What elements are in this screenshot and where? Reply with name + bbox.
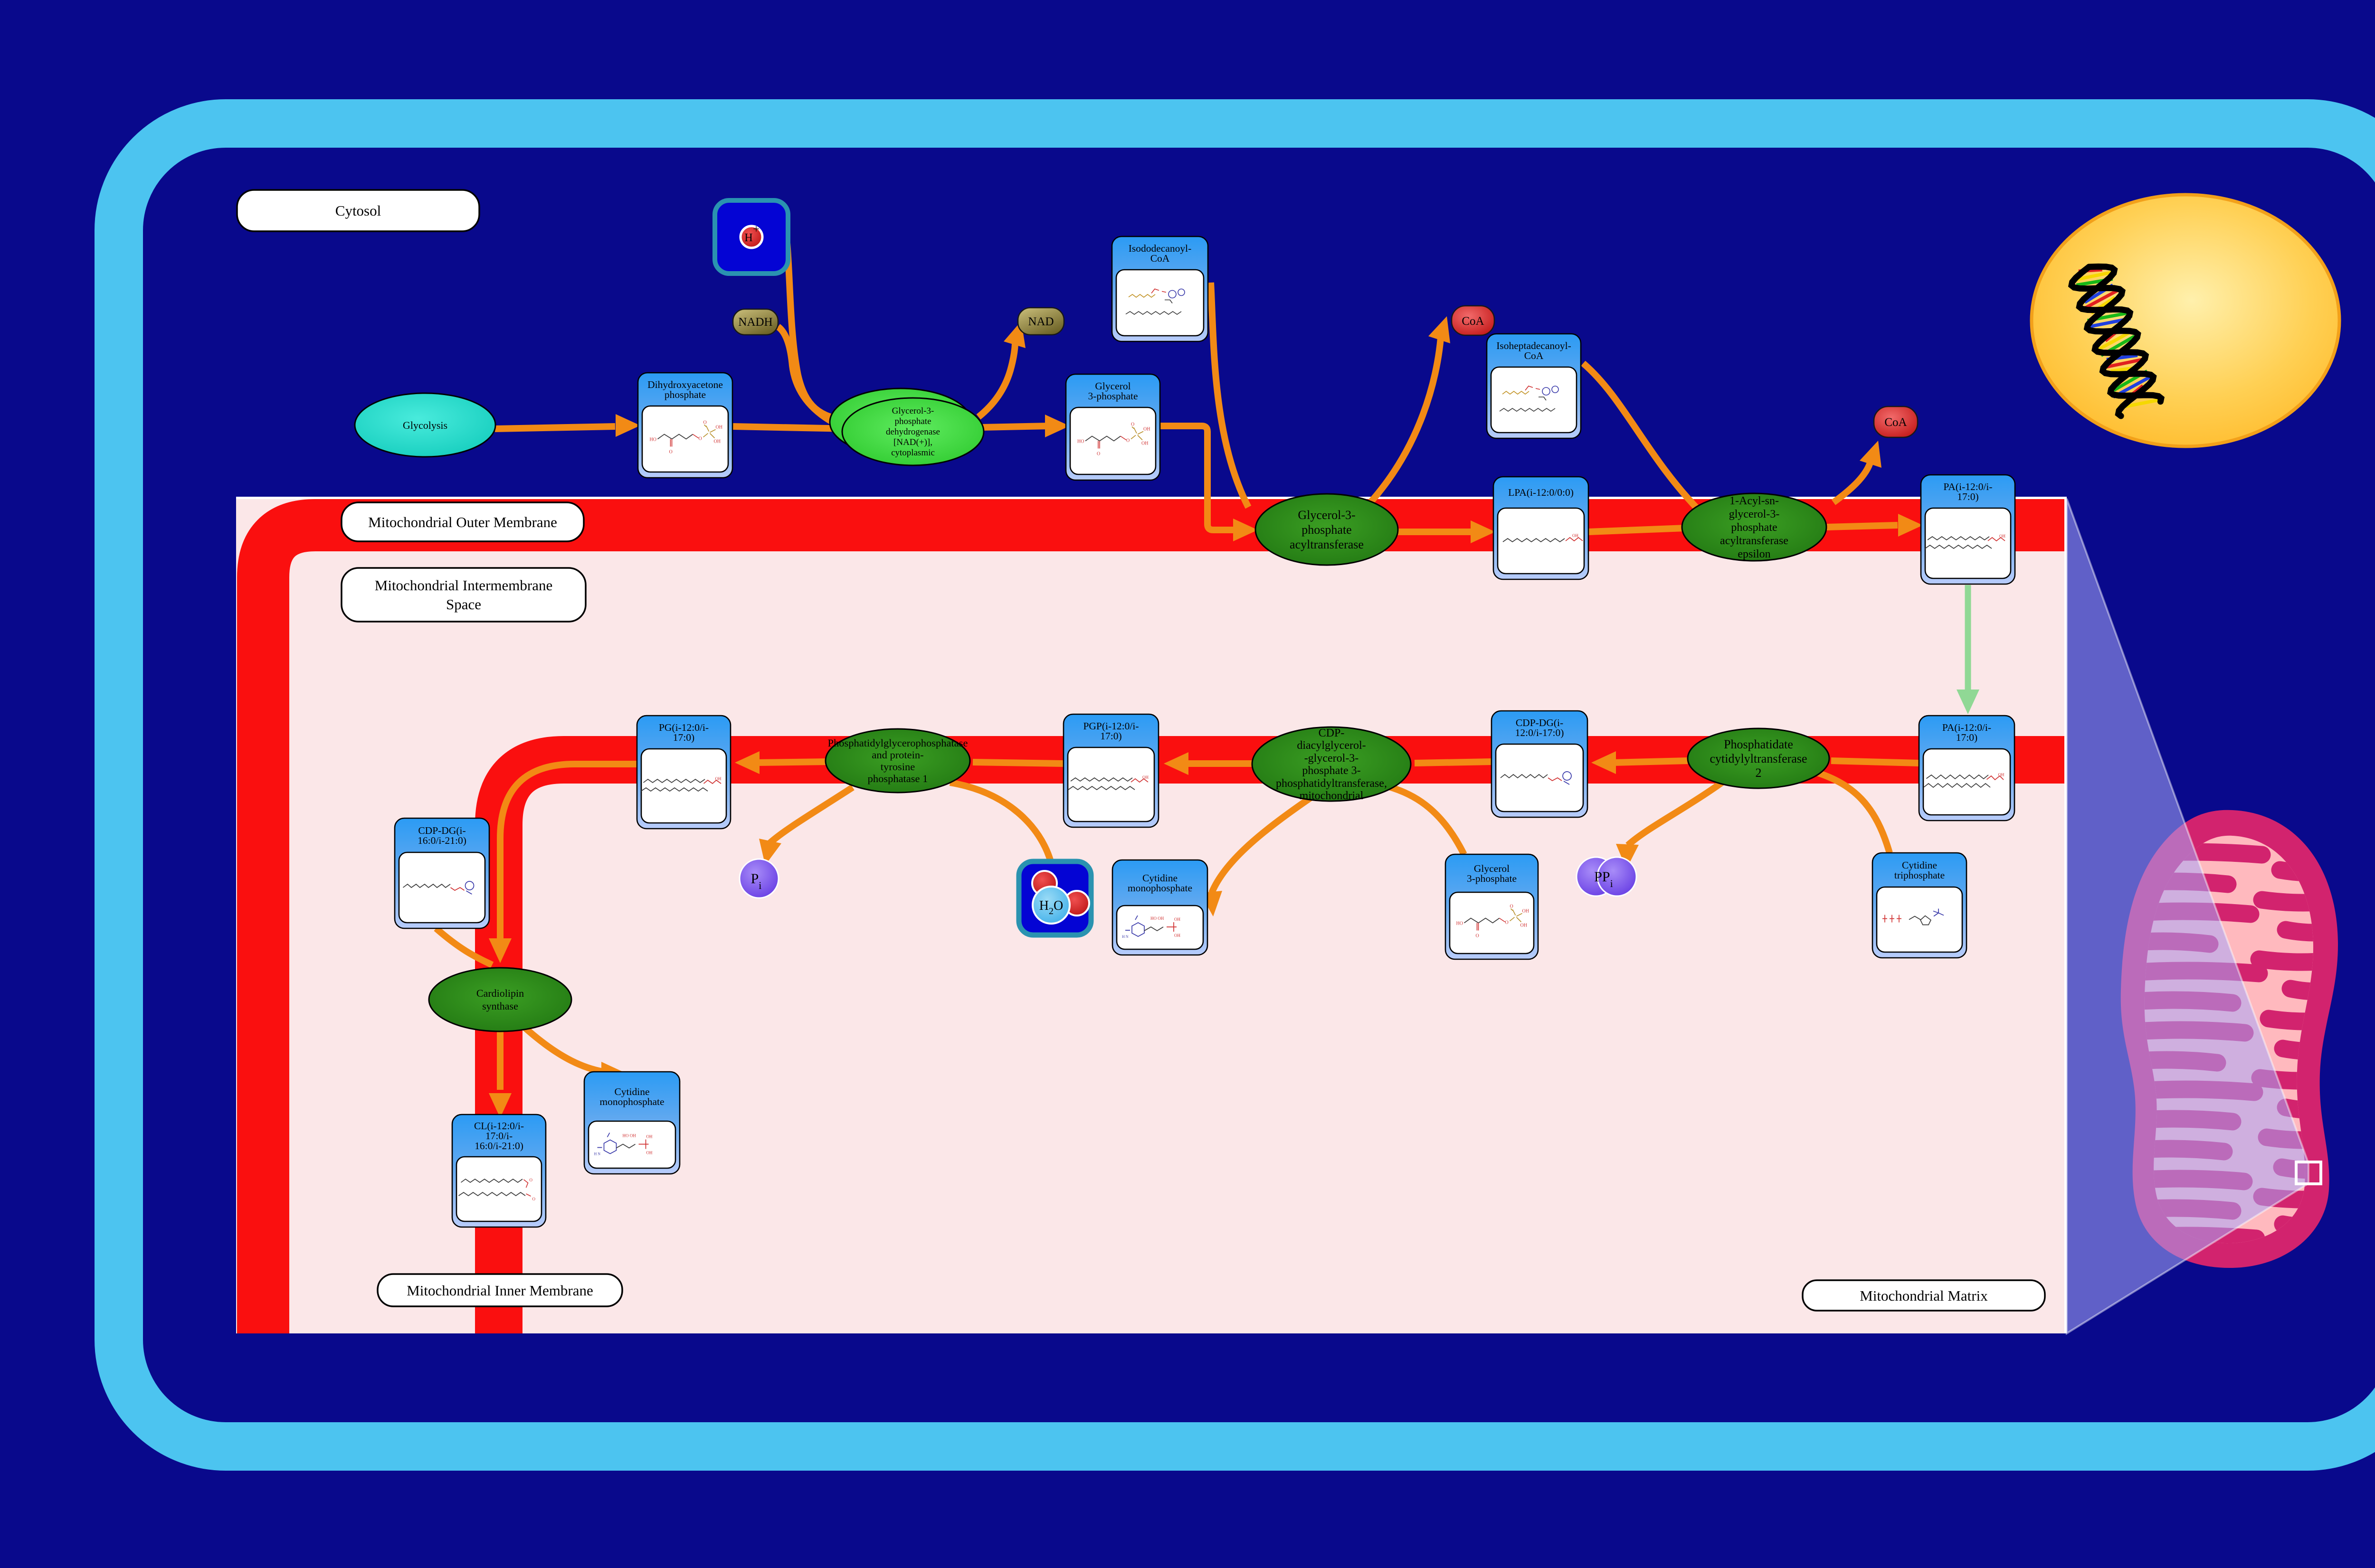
svg-text:OH: OH [1522,909,1529,914]
svg-text:2: 2 [1756,766,1762,780]
svg-text:phosphate: phosphate [665,389,706,400]
svg-text:17:0): 17:0) [1956,732,1977,743]
svg-text:Glycerol-3-: Glycerol-3- [892,406,934,416]
svg-text:CoA: CoA [1150,253,1170,264]
svg-text:O: O [1505,920,1509,926]
svg-text:OH: OH [714,439,721,444]
svg-text:mitochondrial: mitochondrial [1300,790,1364,802]
svg-text:Mitochondrial Inner Membrane: Mitochondrial Inner Membrane [407,1282,593,1299]
svg-text:HO OH: HO OH [623,1133,636,1138]
svg-text:HO OH: HO OH [1150,916,1164,921]
svg-text:Space: Space [446,596,481,613]
svg-text:Cardiolipin: Cardiolipin [476,987,524,999]
svg-text:NADH: NADH [738,316,772,329]
svg-text:monophosphate: monophosphate [599,1096,664,1107]
svg-text:phosphate: phosphate [1301,523,1351,537]
svg-text:1-Acyl-sn-: 1-Acyl-sn- [1729,495,1779,507]
svg-text:OH: OH [1999,534,2005,538]
svg-text:3-phosphate: 3-phosphate [1088,390,1138,402]
svg-text:OH: OH [1174,917,1180,922]
svg-text:glycerol-3-: glycerol-3- [1729,508,1780,520]
svg-text:LPA(i-12:0/0:0): LPA(i-12:0/0:0) [1508,487,1574,498]
svg-text:O: O [699,436,702,442]
svg-text:17:0): 17:0) [1100,730,1121,742]
svg-text:CoA: CoA [1524,350,1544,361]
svg-text:HO: HO [1077,439,1084,444]
svg-text:OH: OH [646,1134,653,1139]
svg-text:Glycolysis: Glycolysis [403,419,447,431]
svg-text:CDP-: CDP- [1319,727,1345,739]
svg-text:cytoplasmic: cytoplasmic [891,448,935,458]
svg-text:O: O [1126,438,1130,444]
svg-text:17:0): 17:0) [1957,491,1978,502]
svg-text:O: O [703,420,707,425]
svg-text:OH: OH [1174,933,1180,938]
svg-text:triphosphate: triphosphate [1894,869,1945,881]
svg-text:phosphate: phosphate [1731,521,1777,534]
svg-text:synthase: synthase [482,1000,518,1012]
svg-text:17:0): 17:0) [673,732,694,743]
svg-text:tyrosine: tyrosine [881,761,915,773]
svg-text:HO: HO [650,437,656,443]
svg-text:acyltransferase: acyltransferase [1290,538,1364,551]
svg-text:phosphatidyltransferase,: phosphatidyltransferase, [1276,777,1387,790]
svg-text:-glycerol-3-: -glycerol-3- [1304,752,1359,765]
svg-text:+: + [753,223,760,236]
svg-text:H: H [744,232,752,244]
svg-text:Phosphatidylglycerophosphatase: Phosphatidylglycerophosphatase [828,737,968,749]
svg-text:H N: H N [1122,935,1129,939]
svg-text:phosphate 3-: phosphate 3- [1302,765,1360,777]
svg-text:NAD: NAD [1028,315,1054,328]
svg-text:H N: H N [594,1152,601,1156]
svg-text:monophosphate: monophosphate [1128,882,1192,894]
svg-text:acyltransferase: acyltransferase [1720,535,1788,547]
svg-text:Mitochondrial Matrix: Mitochondrial Matrix [1860,1287,1988,1304]
svg-text:Mitochondrial Intermembrane: Mitochondrial Intermembrane [375,577,552,594]
svg-text:phosphatase 1: phosphatase 1 [868,773,928,784]
svg-text:OH: OH [715,776,722,781]
svg-text:OH: OH [1998,773,2004,777]
svg-text:Cytosol: Cytosol [335,202,381,219]
svg-text:3-phosphate: 3-phosphate [1467,873,1517,884]
svg-text:OH: OH [1520,923,1527,928]
svg-text:OH: OH [1572,533,1578,538]
svg-text:and protein-: and protein- [872,749,923,761]
svg-text:CoA: CoA [1462,315,1484,328]
svg-text:Mitochondrial Outer Membrane: Mitochondrial Outer Membrane [368,514,557,530]
svg-text:phosphate: phosphate [894,416,931,426]
svg-text:O: O [669,450,673,455]
svg-text:16:0/i-21:0): 16:0/i-21:0) [418,835,466,846]
svg-text:O: O [1097,452,1100,457]
svg-text:dehydrogenase: dehydrogenase [886,427,940,437]
svg-text:CoA: CoA [1884,416,1907,429]
svg-text:OH: OH [646,1151,653,1155]
svg-text:diacylglycerol-: diacylglycerol- [1297,739,1366,752]
svg-text:OH: OH [1142,775,1149,780]
svg-text:[NAD(+)],: [NAD(+)], [893,437,932,447]
svg-text:OH: OH [1143,427,1150,432]
svg-text:O: O [532,1197,536,1201]
svg-text:epsilon: epsilon [1738,548,1770,560]
svg-text:HO: HO [1456,921,1463,926]
svg-text:16:0/i-21:0): 16:0/i-21:0) [475,1140,523,1152]
svg-text:Phosphatidate: Phosphatidate [1724,737,1793,751]
svg-text:O: O [1510,904,1513,909]
svg-text:OH: OH [1141,441,1148,446]
svg-text:cytidylyltransferase: cytidylyltransferase [1710,752,1807,765]
svg-text:O: O [1476,934,1479,939]
svg-text:O: O [1131,422,1134,427]
svg-text:12:0/i-17:0): 12:0/i-17:0) [1515,727,1564,738]
svg-text:OH: OH [716,425,722,430]
svg-text:Glycerol-3-: Glycerol-3- [1298,508,1355,522]
svg-text:O: O [530,1178,533,1182]
